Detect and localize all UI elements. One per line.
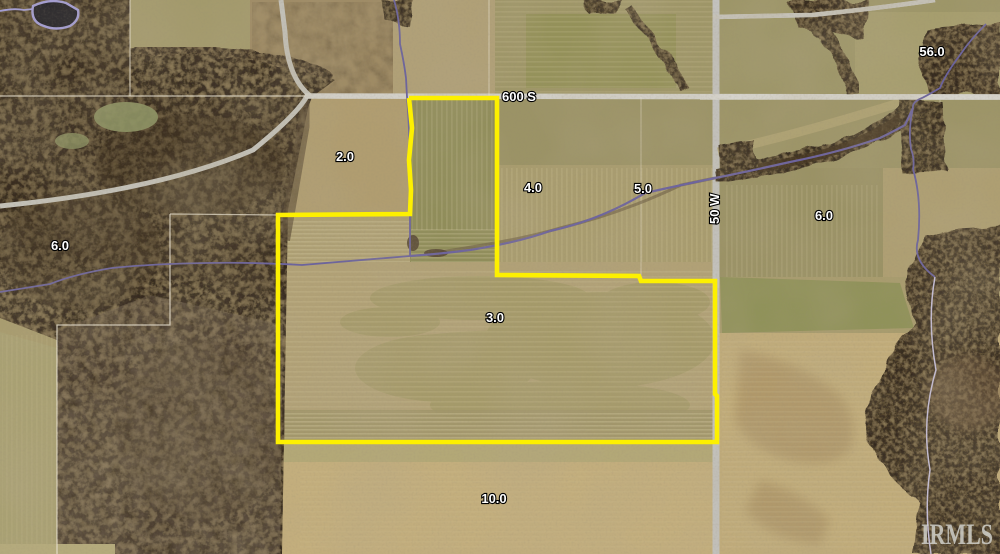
svg-text:6.0: 6.0 [51,238,69,253]
svg-text:10.0: 10.0 [481,491,506,506]
svg-text:50 W: 50 W [707,193,722,224]
svg-text:5.0: 5.0 [634,181,652,196]
svg-text:600 S: 600 S [502,89,536,104]
svg-text:3.0: 3.0 [486,310,504,325]
svg-text:2.0: 2.0 [336,149,354,164]
svg-text:4.0: 4.0 [524,180,542,195]
svg-text:6.0: 6.0 [815,208,833,223]
svg-text:IRMLS: IRMLS [921,518,993,551]
svg-text:56.0: 56.0 [919,44,944,59]
